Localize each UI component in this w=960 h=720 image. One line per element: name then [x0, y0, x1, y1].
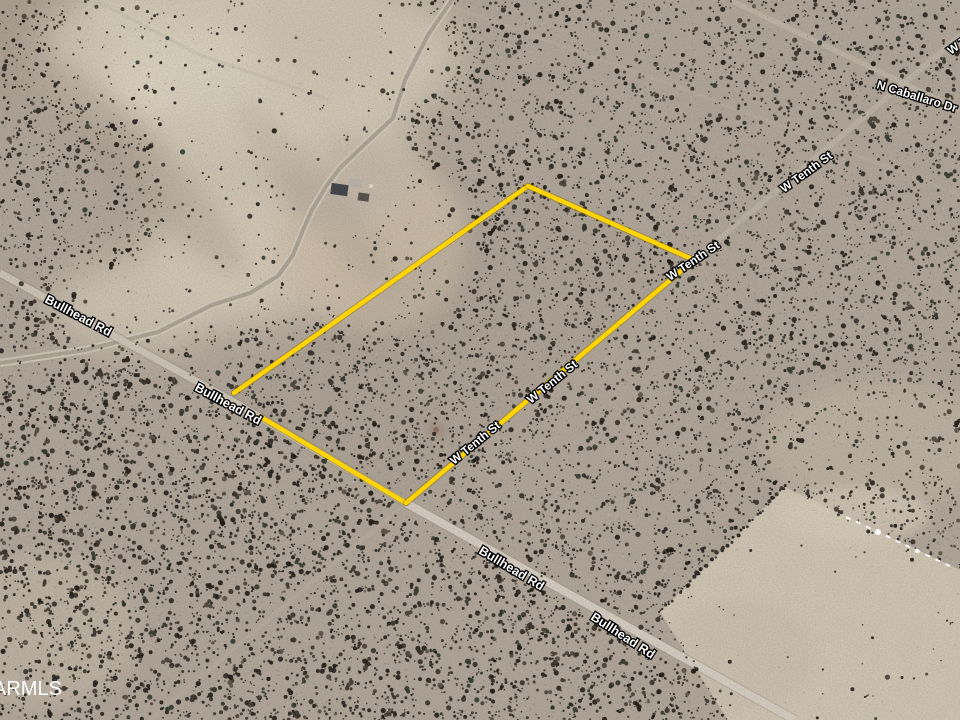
- svg-text:ARMLS: ARMLS: [0, 678, 62, 700]
